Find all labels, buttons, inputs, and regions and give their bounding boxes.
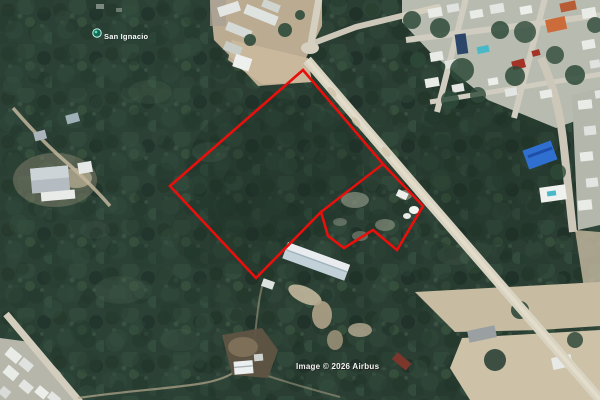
building [580, 151, 594, 161]
building [584, 125, 597, 135]
place-marker-icon-highlight [95, 31, 98, 34]
map-canvas[interactable]: San Ignacio San Ignacio Image © 2026 Air… [0, 0, 600, 400]
attribution: Image © 2026 Airbus Image © 2026 Airbus [296, 362, 380, 372]
building [578, 199, 593, 210]
white-structure [403, 213, 411, 219]
building [578, 99, 593, 109]
building [586, 177, 599, 187]
satellite-image: San Ignacio San Ignacio Image © 2026 Air… [0, 0, 600, 400]
place-label: San Ignacio [104, 32, 149, 41]
building [254, 354, 264, 362]
place-marker-icon[interactable] [93, 29, 101, 37]
attribution-label: Image © 2026 Airbus [296, 362, 380, 371]
